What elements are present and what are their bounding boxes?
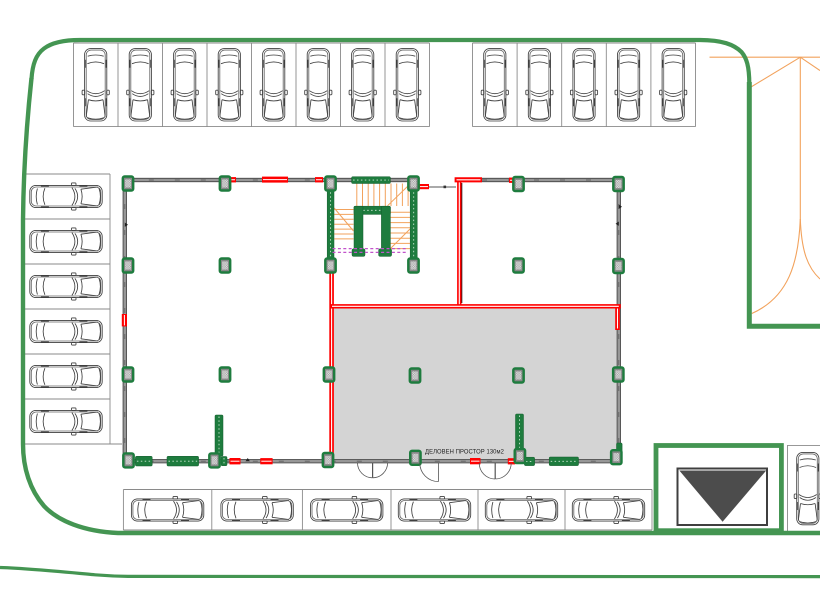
svg-text:ДЕЛОВЕН ПРОСТОР 130м2: ДЕЛОВЕН ПРОСТОР 130м2 — [425, 448, 504, 455]
